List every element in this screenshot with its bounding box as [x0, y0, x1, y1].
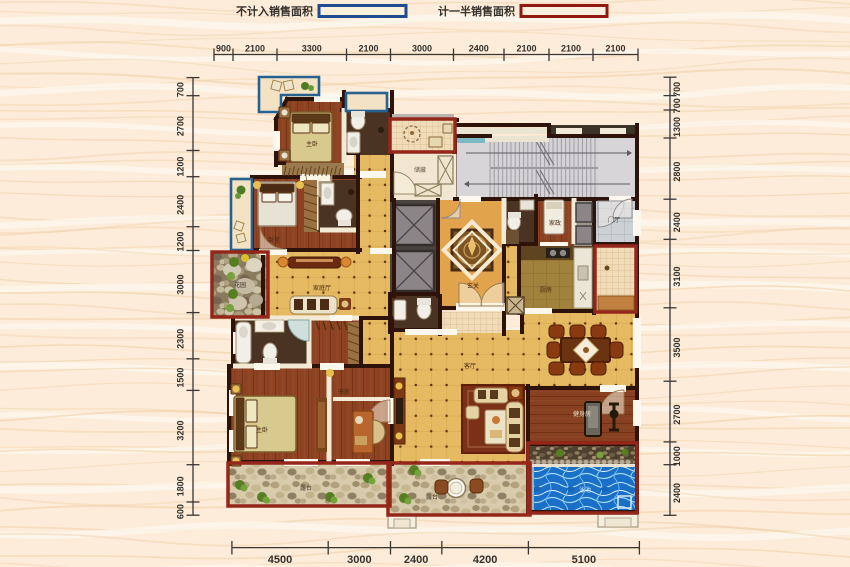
svg-text:储藏: 储藏: [414, 166, 426, 174]
svg-text:2300: 2300: [176, 329, 186, 349]
svg-text:4500: 4500: [268, 554, 292, 566]
svg-text:3300: 3300: [302, 44, 322, 54]
svg-text:不计入销售面积: 不计入销售面积: [236, 4, 313, 18]
svg-text:1200: 1200: [176, 232, 186, 252]
svg-text:3000: 3000: [176, 275, 186, 295]
svg-text:露台: 露台: [426, 493, 438, 501]
svg-text:3000: 3000: [412, 44, 432, 54]
svg-text:5100: 5100: [572, 554, 596, 566]
svg-text:泳池: 泳池: [579, 486, 591, 494]
svg-text:卧室: 卧室: [268, 236, 280, 244]
svg-text:3000: 3000: [347, 554, 371, 566]
svg-text:700: 700: [176, 82, 186, 97]
svg-text:露台: 露台: [300, 484, 312, 492]
svg-text:2400: 2400: [469, 44, 489, 54]
svg-text:900: 900: [216, 44, 231, 54]
svg-text:计一半销售面积: 计一半销售面积: [438, 4, 515, 18]
svg-text:2400: 2400: [672, 483, 682, 503]
svg-text:家庭厅: 家庭厅: [313, 284, 331, 292]
svg-text:2100: 2100: [358, 44, 378, 54]
svg-text:健身房: 健身房: [573, 410, 591, 418]
svg-text:家政: 家政: [549, 219, 561, 227]
svg-text:700: 700: [672, 98, 682, 113]
svg-text:2100: 2100: [605, 44, 625, 54]
svg-text:2700: 2700: [176, 116, 186, 136]
svg-text:1800: 1800: [176, 476, 186, 496]
svg-text:4200: 4200: [473, 554, 497, 566]
svg-text:1000: 1000: [672, 446, 682, 466]
svg-text:门厅: 门厅: [608, 216, 620, 224]
svg-text:1500: 1500: [176, 368, 186, 388]
svg-text:2400: 2400: [176, 195, 186, 215]
svg-text:2400: 2400: [672, 212, 682, 232]
svg-text:厨房: 厨房: [540, 286, 552, 294]
svg-text:书房: 书房: [338, 388, 350, 396]
svg-text:主卧: 主卧: [306, 140, 318, 148]
svg-text:主卧: 主卧: [256, 426, 268, 434]
svg-text:2100: 2100: [245, 44, 265, 54]
svg-text:1300: 1300: [672, 117, 682, 137]
svg-text:花园: 花园: [234, 281, 246, 289]
svg-text:2100: 2100: [561, 44, 581, 54]
svg-text:1200: 1200: [176, 157, 186, 177]
svg-text:2100: 2100: [516, 44, 536, 54]
svg-text:2400: 2400: [404, 554, 428, 566]
svg-text:玄关: 玄关: [467, 282, 479, 290]
svg-text:700: 700: [672, 82, 682, 97]
svg-text:3200: 3200: [176, 421, 186, 441]
svg-text:3100: 3100: [672, 267, 682, 287]
svg-text:600: 600: [176, 504, 186, 519]
svg-text:2700: 2700: [672, 405, 682, 425]
svg-text:3500: 3500: [672, 337, 682, 357]
svg-text:2800: 2800: [672, 162, 682, 182]
svg-text:客厅: 客厅: [464, 362, 476, 370]
